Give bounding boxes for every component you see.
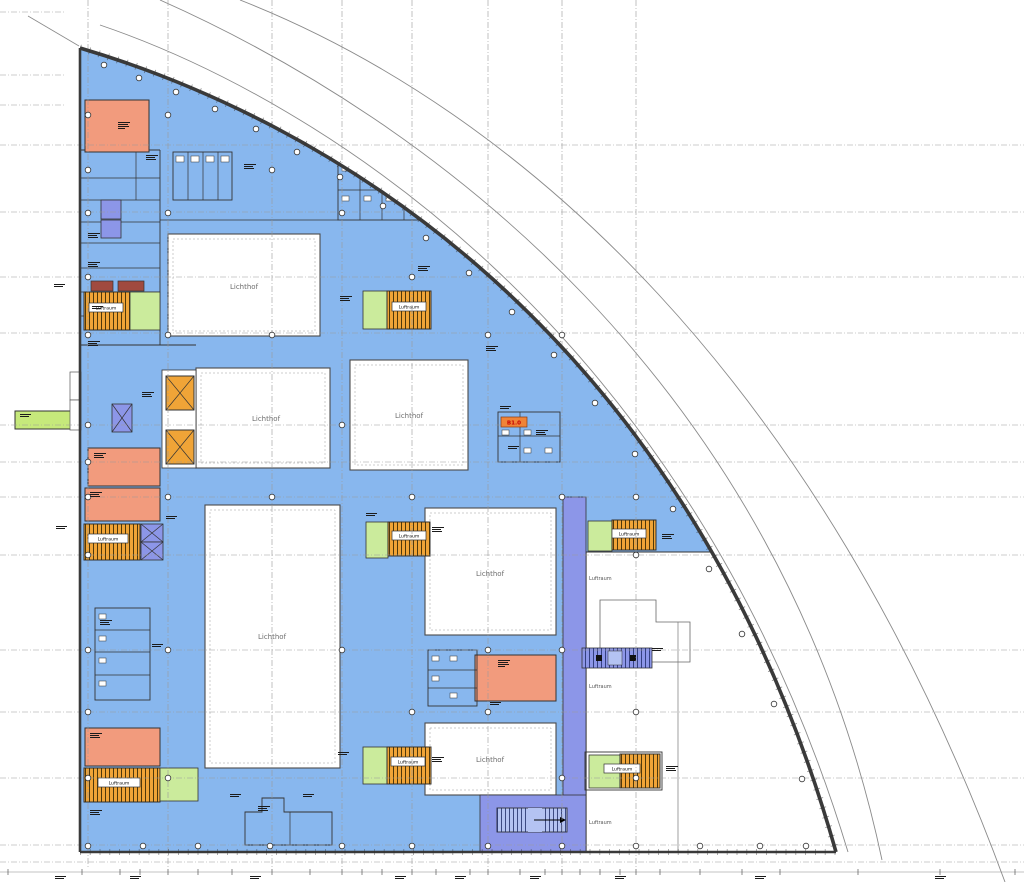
stair-run-bottom: [497, 808, 567, 832]
courtyard-label: Lichthof: [252, 415, 281, 423]
floor-plan-drawing: Lichthof Lichthof Lichthof Lichthof Lich: [0, 0, 1024, 882]
void-label: Luftraum: [589, 684, 612, 690]
stair-core-4: Luftraum: [588, 520, 656, 551]
void-label: Luftraum: [589, 820, 612, 826]
bridge-stair: [582, 648, 652, 668]
courtyard-label: Lichthof: [395, 412, 424, 420]
shaft-box: [118, 281, 144, 291]
service-room: [101, 200, 121, 219]
green-room: [130, 292, 160, 330]
technical-room: [85, 100, 149, 152]
courtyard-lichthof-5: Lichthof: [425, 508, 556, 635]
stair-core-label: Luftraum: [612, 767, 633, 773]
stair-core-2: Luftraum: [363, 291, 431, 329]
stair-core-label: Luftraum: [98, 537, 119, 543]
stair-core-6: Luftraum: [84, 768, 198, 802]
courtyard-lichthof-1: Lichthof: [168, 234, 320, 336]
green-room: [588, 521, 612, 551]
room-tag: B1.0: [501, 417, 527, 427]
stair-core-label: Luftraum: [109, 781, 130, 787]
courtyard-lichthof-6: Lichthof: [425, 723, 556, 795]
green-room: [363, 291, 387, 329]
stair-core-label: Luftraum: [399, 534, 420, 540]
courtyard-lichthof-2: Lichthof: [196, 368, 330, 468]
floor-plan-page: Lichthof Lichthof Lichthof Lichthof Lich: [0, 0, 1024, 882]
courtyard-label: Lichthof: [476, 756, 505, 764]
void-label: Luftraum: [589, 576, 612, 582]
technical-room: [475, 655, 556, 701]
stair-core-label: Luftraum: [399, 305, 420, 311]
stair-core-8: Luftraum: [585, 752, 662, 790]
green-room: [160, 768, 198, 801]
room-tag-label: B1.0: [507, 421, 521, 427]
green-room: [363, 747, 387, 784]
stair-core-5: Luftraum: [84, 524, 163, 560]
stair-core-7: Luftraum: [363, 747, 431, 784]
stair-core-label: Luftraum: [398, 760, 419, 766]
courtyard-label: Lichthof: [230, 283, 259, 291]
courtyard-lichthof-4: Lichthof: [205, 505, 340, 768]
courtyard-lichthof-3: Lichthof: [350, 360, 468, 470]
stair-core-label: Luftraum: [619, 532, 640, 538]
elevator-bank: [162, 370, 196, 468]
stair-core-3: Luftraum: [366, 522, 430, 558]
green-room: [366, 522, 388, 558]
courtyard-label: Lichthof: [476, 570, 505, 578]
service-room: [101, 220, 121, 238]
shaft-box: [91, 281, 113, 291]
